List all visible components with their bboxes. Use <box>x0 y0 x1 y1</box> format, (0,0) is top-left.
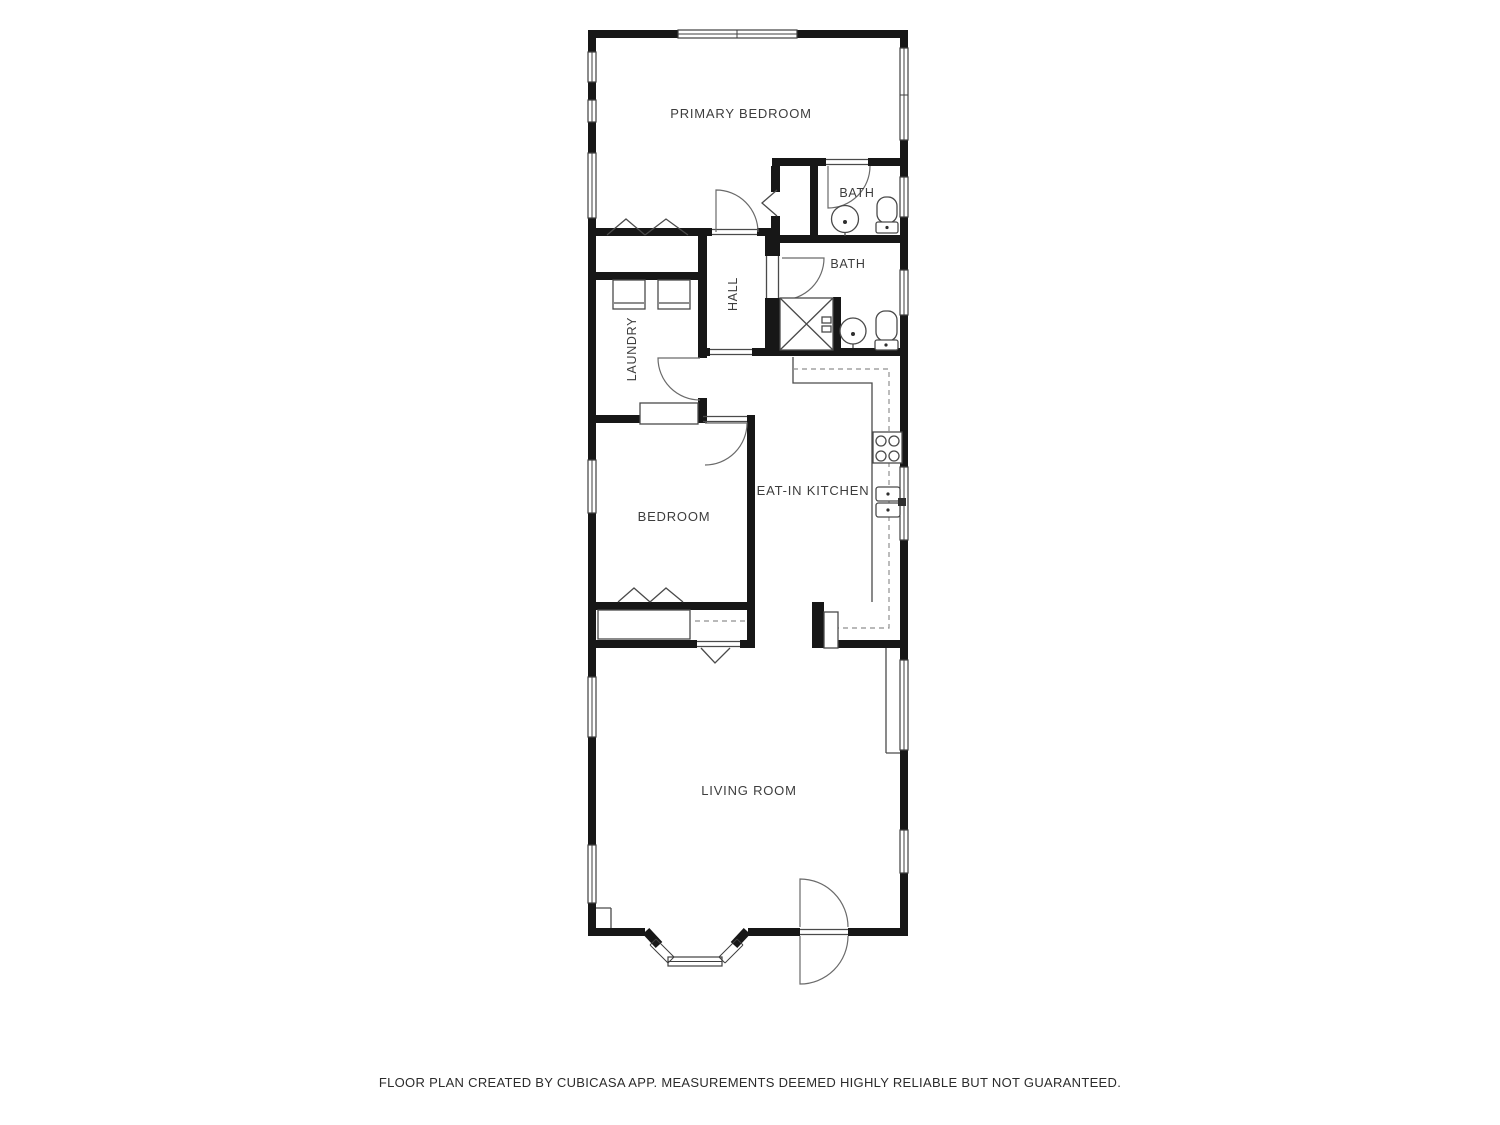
floor-plan-page: PRIMARY BEDROOM BATH BATH HALL LAUNDRY B… <box>0 0 1500 1125</box>
laundry-cabinet <box>640 403 698 424</box>
room-label-primary-bedroom: PRIMARY BEDROOM <box>670 106 812 121</box>
room-label-laundry: LAUNDRY <box>625 317 639 381</box>
closet-shelf <box>598 610 690 639</box>
toilet-icon <box>876 311 897 341</box>
room-label-bedroom: BEDROOM <box>638 509 711 524</box>
door-arc-primary-bedroom <box>716 190 758 232</box>
door-arc-bath-main <box>782 258 824 300</box>
floor-plan-svg: PRIMARY BEDROOM BATH BATH HALL LAUNDRY B… <box>0 0 1500 1125</box>
door-arc-bedroom <box>705 423 747 465</box>
toilet-icon <box>877 197 897 223</box>
room-label-kitchen: EAT-IN KITCHEN <box>757 483 870 498</box>
door-frames <box>697 160 868 935</box>
room-label-hall: HALL <box>726 277 740 311</box>
opening-chevron <box>701 648 730 663</box>
counter <box>824 612 838 648</box>
bay-window-corner-walls <box>646 931 747 945</box>
sink-icon <box>840 318 866 344</box>
closet-chevron <box>618 588 650 602</box>
door-arc-entry-lower <box>800 936 848 984</box>
closet-chevron <box>650 588 683 602</box>
bath-top-fixtures <box>832 197 899 236</box>
bedroom-closet <box>598 610 747 639</box>
bay-window <box>650 939 743 966</box>
faucet-icon <box>898 498 906 506</box>
kitchen-fixtures <box>793 357 906 648</box>
door-arc-laundry <box>658 358 700 400</box>
counter <box>793 357 872 602</box>
room-label-bath-main: BATH <box>830 257 865 271</box>
door-arc-entry-upper <box>800 879 848 927</box>
opening-chevron <box>762 190 777 216</box>
washer-icon <box>613 280 645 309</box>
room-label-living-room: LIVING ROOM <box>701 783 796 798</box>
dryer-icon <box>658 280 690 309</box>
upper-cabinets-dashed <box>793 369 889 628</box>
footer-disclaimer: FLOOR PLAN CREATED BY CUBICASA APP. MEAS… <box>379 1075 1121 1090</box>
sink-icon <box>832 206 859 233</box>
room-label-bath-top: BATH <box>839 186 874 200</box>
